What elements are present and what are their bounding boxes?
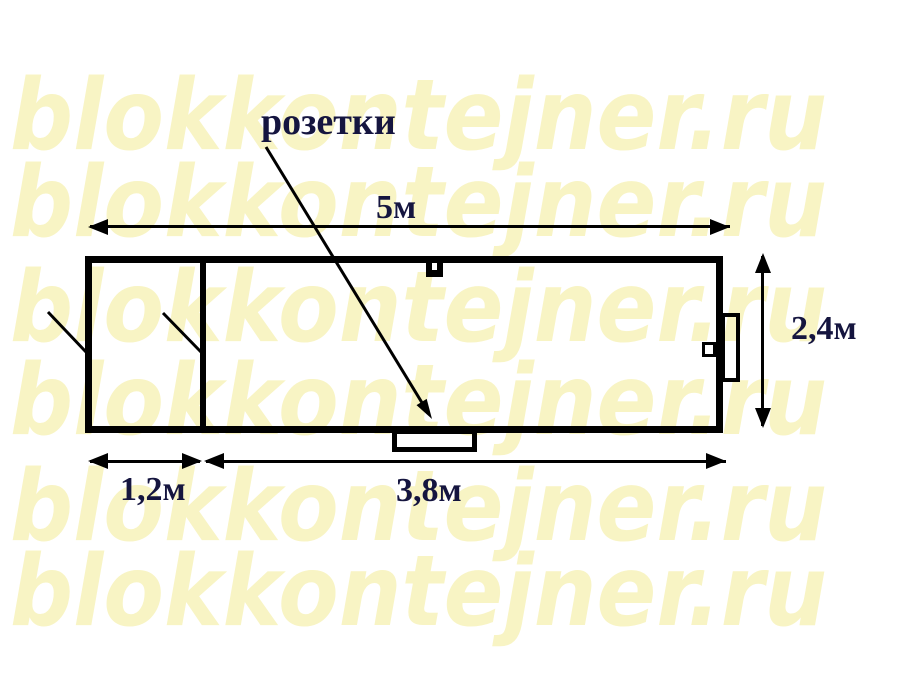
- dim-24m-arrow-bottom: [755, 408, 771, 428]
- dim-12m-arrow-right: [182, 453, 202, 469]
- floor-plan-diagram: blokkontejner.ru blokkontejner.ru blokko…: [0, 0, 900, 675]
- dim-5m-arrow-right: [710, 219, 730, 235]
- dim-24m-label: 2,4м: [791, 312, 857, 346]
- sockets-label: розетки: [261, 103, 396, 141]
- dim-24m-arrow-top: [755, 253, 771, 273]
- diagonal-lines-overlay: [0, 0, 900, 675]
- sockets-leader-arrowhead: [417, 399, 433, 419]
- dim-12m-label: 1,2м: [120, 473, 186, 507]
- dim-5m-label: 5м: [376, 191, 416, 225]
- dim-38m-arrow-left: [204, 453, 224, 469]
- sockets-leader-line: [266, 147, 424, 406]
- dim-5m-arrow-left: [88, 219, 108, 235]
- dim-24m-line: [761, 256, 764, 426]
- dim-38m-arrow-right: [706, 453, 726, 469]
- dim-38m-label: 3,8м: [396, 474, 462, 508]
- door-swing-left-wall: [48, 312, 86, 352]
- dim-12m-arrow-left: [88, 453, 108, 469]
- dim-38m-line: [206, 460, 726, 463]
- door-swing-partition: [163, 313, 201, 352]
